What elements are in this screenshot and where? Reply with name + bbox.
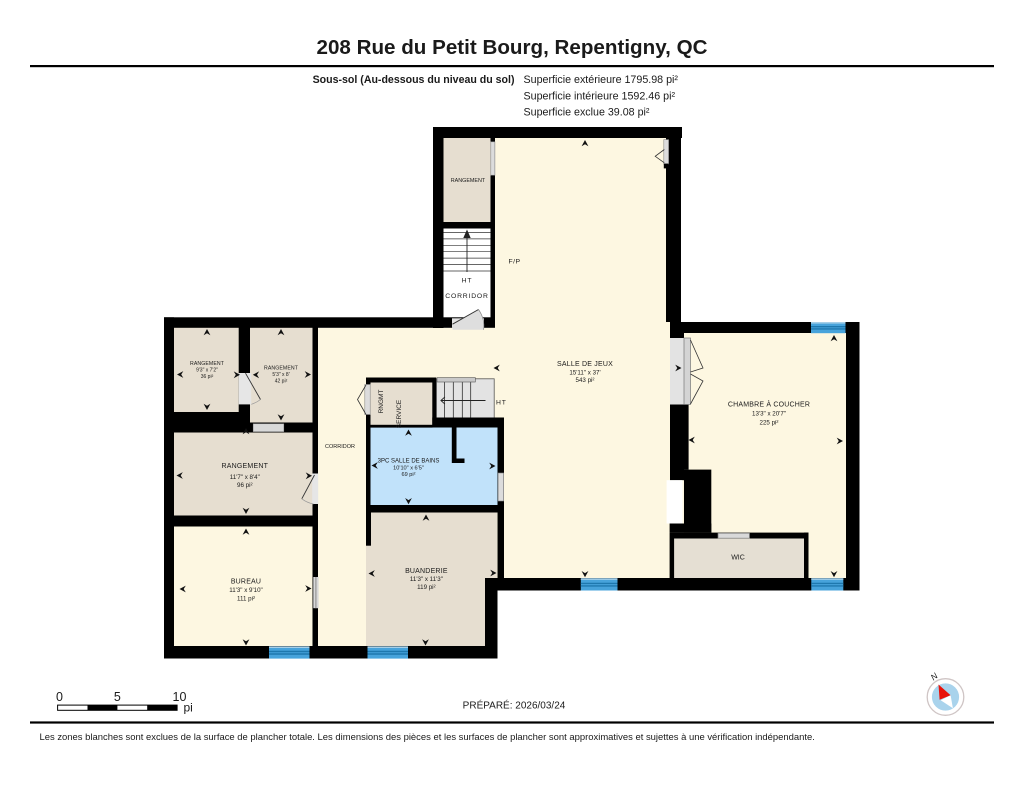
svg-text:CORRIDOR: CORRIDOR <box>325 444 355 450</box>
svg-text:42 pi²: 42 pi² <box>275 379 288 385</box>
svg-text:RANGEMENT: RANGEMENT <box>451 178 486 184</box>
svg-text:11'7" x 8'4": 11'7" x 8'4" <box>230 474 260 481</box>
svg-text:69 pi²: 69 pi² <box>402 472 416 478</box>
svg-text:pi: pi <box>184 701 193 715</box>
svg-text:543 pi²: 543 pi² <box>576 377 595 384</box>
svg-text:BUREAU: BUREAU <box>231 579 261 586</box>
svg-text:PRÉPARÉ: 2026/03/24: PRÉPARÉ: 2026/03/24 <box>463 699 566 712</box>
svg-text:3PC SALLE DE BAINS: 3PC SALLE DE BAINS <box>378 458 440 464</box>
svg-text:96 pi²: 96 pi² <box>237 482 252 489</box>
svg-text:15'11" x 37': 15'11" x 37' <box>569 369 600 376</box>
svg-text:Superficie extérieure 1795.98: Superficie extérieure 1795.98 pi² <box>524 74 679 86</box>
svg-text:225 pi²: 225 pi² <box>760 420 779 427</box>
svg-text:36 pi²: 36 pi² <box>201 374 214 380</box>
svg-text:CORRIDOR: CORRIDOR <box>445 293 488 300</box>
svg-text:SERVICE: SERVICE <box>396 399 403 428</box>
svg-text:9'3" x 7'2": 9'3" x 7'2" <box>196 368 218 374</box>
svg-text:HT: HT <box>496 400 507 407</box>
svg-text:RNGMT: RNGMT <box>378 390 385 414</box>
svg-text:CHAMBRE À COUCHER: CHAMBRE À COUCHER <box>728 400 810 409</box>
svg-text:119 pi²: 119 pi² <box>417 584 435 591</box>
svg-text:11'3" x 9'10": 11'3" x 9'10" <box>229 587 262 594</box>
svg-text:10'10" x 6'5": 10'10" x 6'5" <box>393 465 424 471</box>
svg-text:RANGEMENT: RANGEMENT <box>190 361 225 367</box>
svg-text:0: 0 <box>56 690 63 704</box>
svg-text:RANGEMENT: RANGEMENT <box>222 463 269 470</box>
svg-text:208 Rue du Petit Bourg, Repent: 208 Rue du Petit Bourg, Repentigny, QC <box>317 36 708 59</box>
svg-text:HT: HT <box>462 278 473 285</box>
svg-text:RANGEMENT: RANGEMENT <box>264 366 299 372</box>
svg-text:Sous-sol (Au-dessous du niveau: Sous-sol (Au-dessous du niveau du sol) <box>313 74 515 86</box>
svg-text:F/P: F/P <box>508 259 520 266</box>
svg-text:SALLE DE JEUX: SALLE DE JEUX <box>557 361 613 368</box>
svg-text:Superficie intérieure 1592.46: Superficie intérieure 1592.46 pi² <box>524 91 676 103</box>
svg-text:BUANDERIE: BUANDERIE <box>405 568 448 575</box>
svg-text:111 pi²: 111 pi² <box>237 596 255 603</box>
svg-text:WIC: WIC <box>731 555 745 562</box>
svg-text:5'3" x 8': 5'3" x 8' <box>272 372 289 378</box>
svg-text:Superficie exclue 39.08 pi²: Superficie exclue 39.08 pi² <box>524 107 650 119</box>
svg-text:Les zones blanches sont exclue: Les zones blanches sont exclues de la su… <box>40 732 815 743</box>
svg-text:13'3" x 20'7": 13'3" x 20'7" <box>752 411 786 418</box>
svg-text:11'3" x 11'3": 11'3" x 11'3" <box>410 576 443 583</box>
svg-text:5: 5 <box>114 690 121 704</box>
